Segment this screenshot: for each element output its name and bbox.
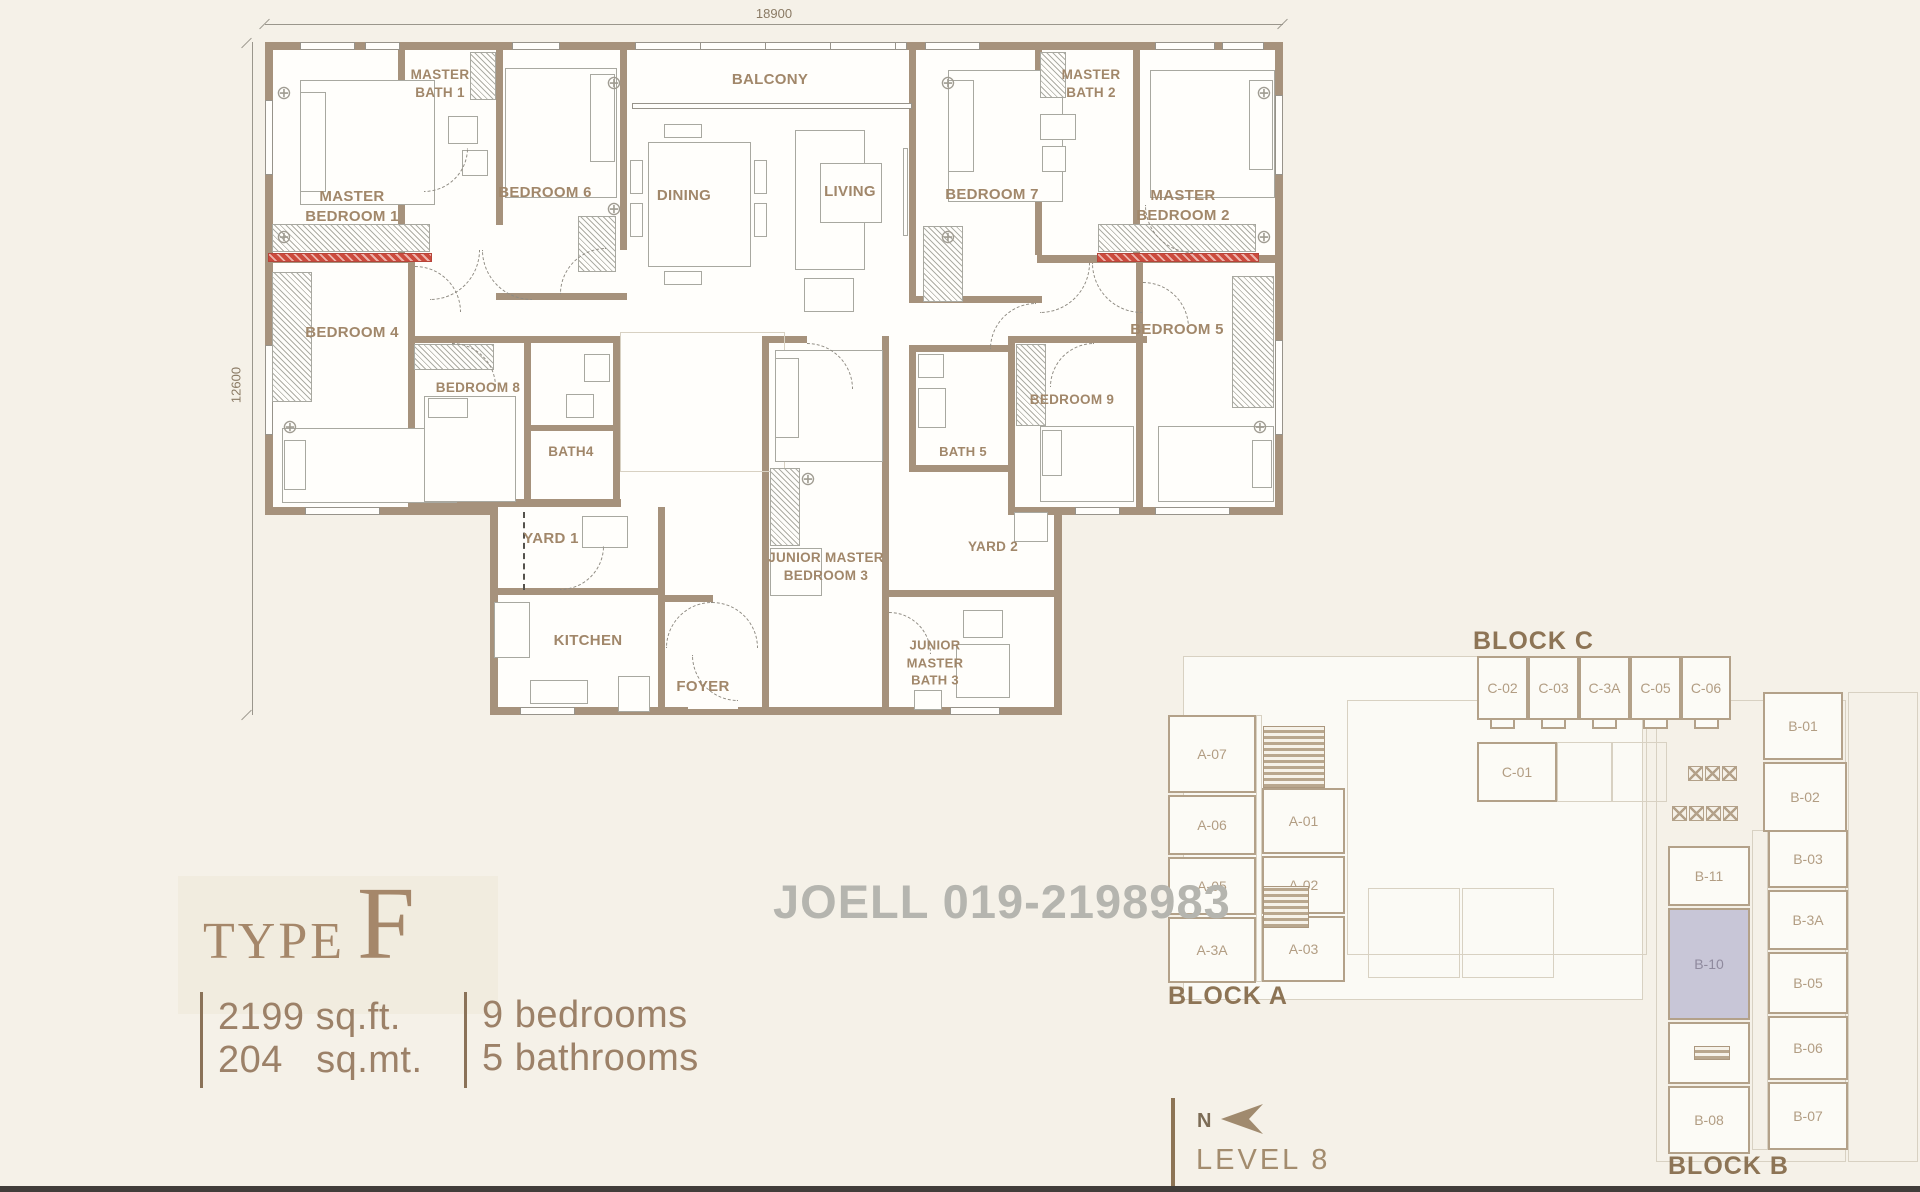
bed-pillow: [1042, 430, 1062, 476]
stair-core: [1694, 1046, 1730, 1060]
keyplan-unit-b05: B-05: [1768, 952, 1848, 1014]
unit-type-word: TYPE: [203, 912, 345, 971]
window: [512, 42, 560, 50]
basin: [914, 690, 942, 710]
unit-rooms: 9 bedrooms5 bathrooms: [482, 994, 699, 1079]
unit-label: A-3A: [1196, 942, 1227, 958]
wall: [1008, 336, 1015, 507]
wall: [613, 343, 620, 507]
downlight-icon: ⊕: [282, 418, 298, 437]
room-label-foyer: FOYER: [676, 677, 729, 697]
red-strip: [1097, 253, 1259, 262]
keyplan-unit-b03: B-03: [1768, 830, 1848, 888]
dimension-line-left: [252, 42, 253, 715]
toilet: [1040, 114, 1076, 140]
keyplan-unit-c05: C-05: [1630, 656, 1681, 720]
unit-area: 2199 sq.ft.204 sq.mt.: [218, 996, 423, 1081]
keyplan-tab: [1643, 718, 1668, 729]
window: [1155, 42, 1215, 50]
block-c-label: BLOCK C: [1473, 627, 1594, 656]
service-duct-outline: [620, 332, 785, 472]
wall: [909, 50, 916, 303]
basin: [918, 354, 944, 378]
window: [300, 42, 355, 50]
keyplan-unit-b06: B-06: [1768, 1016, 1848, 1080]
wall: [531, 425, 613, 431]
level-label: LEVEL 8: [1196, 1144, 1330, 1177]
chair: [630, 160, 643, 194]
room-label-bedroom-7: BEDROOM 7: [945, 185, 1039, 205]
red-strip: [268, 253, 432, 262]
wall: [909, 345, 916, 472]
dimension-tick: [241, 38, 252, 49]
chair: [630, 203, 643, 237]
keyplan-unit-b10-highlighted: B-10: [1668, 908, 1750, 1020]
north-label: N: [1197, 1110, 1211, 1133]
toilet: [963, 610, 1003, 638]
kitchen-sink: [530, 680, 588, 704]
lift-icon: [1706, 806, 1721, 821]
keyplan-unit-a01: A-01: [1262, 788, 1345, 854]
toilet: [918, 388, 946, 428]
wall: [889, 590, 1055, 597]
keyplan-amenity: [1368, 888, 1460, 978]
wall: [524, 343, 531, 507]
unit-label: B-07: [1793, 1108, 1823, 1124]
wall: [265, 507, 498, 515]
downlight-icon: ⊕: [276, 84, 292, 103]
room-label-bedroom-4: BEDROOM 4: [305, 323, 399, 343]
dimension-line-top: [265, 24, 1283, 25]
keyplan-unit-a06: A-06: [1168, 795, 1256, 855]
room-label-living: LIVING: [824, 182, 876, 202]
spec-divider: [200, 992, 203, 1088]
keyplan-unit-c02: C-02: [1477, 656, 1528, 720]
room-label-junior-master-bedroom-3: JUNIOR MASTER BEDROOM 3: [768, 549, 884, 585]
shower: [956, 644, 1010, 698]
room-label-dining: DINING: [657, 186, 711, 206]
keyplan-unit-b08: B-08: [1668, 1086, 1750, 1154]
downlight-icon: ⊕: [1256, 228, 1272, 247]
unit-label: B-3A: [1792, 912, 1823, 928]
bedrooms-count: 9 bedrooms: [482, 994, 688, 1036]
downlight-icon: ⊕: [276, 228, 292, 247]
keyplan-unit-c06: C-06: [1681, 656, 1731, 720]
unit-label: C-06: [1691, 680, 1721, 696]
lift-icon: [1689, 806, 1704, 821]
room-label-master-bedroom-1: MASTER BEDROOM 1: [305, 187, 399, 228]
room-label-bath-5: BATH 5: [939, 443, 987, 461]
dimension-left-label: 12600: [229, 367, 244, 403]
downlight-icon: ⊕: [940, 74, 956, 93]
window: [305, 507, 380, 515]
basin: [1042, 146, 1066, 172]
north-arrow-icon: [1219, 1103, 1265, 1135]
bed-pillow: [300, 92, 326, 192]
unit-label: C-3A: [1589, 680, 1621, 696]
stair-core: [1263, 886, 1309, 928]
wardrobe: [1232, 276, 1274, 408]
wall: [882, 336, 889, 715]
bed-pillow: [284, 440, 306, 490]
unit-label: B-06: [1793, 1040, 1823, 1056]
page-bottom-bar: [0, 1186, 1920, 1192]
stove: [494, 602, 530, 658]
keyplan-unit-b02: B-02: [1763, 762, 1847, 832]
yard-sink: [582, 516, 628, 548]
keyplan-unit-b07: B-07: [1768, 1082, 1848, 1150]
bed-pillow: [775, 358, 799, 438]
unit-label: B-10: [1694, 956, 1724, 972]
wall: [496, 588, 665, 595]
keyplan-unit-b11: B-11: [1668, 846, 1750, 906]
window: [520, 707, 575, 715]
tv-console: [903, 148, 908, 236]
block-b-label: BLOCK B: [1668, 1152, 1789, 1181]
chair: [664, 124, 702, 138]
level-divider: [1171, 1098, 1175, 1188]
wall: [658, 595, 665, 715]
keyplan-slab: [1848, 692, 1918, 1162]
unit-label: B-02: [1790, 789, 1820, 805]
lift-icon: [1705, 766, 1720, 781]
agent-watermark: JOELL 019-2198983: [773, 874, 1231, 929]
lift-icon: [1672, 806, 1687, 821]
wardrobe: [770, 468, 800, 546]
keyplan-tab: [1592, 718, 1617, 729]
wall: [658, 595, 713, 602]
keyplan-unit-b01: B-01: [1763, 692, 1843, 760]
keyplan-tab: [1490, 718, 1515, 729]
room-label-yard-2: YARD 2: [968, 538, 1018, 556]
window: [925, 42, 980, 50]
room-label-bedroom-6: BEDROOM 6: [498, 183, 592, 203]
room-label-bedroom-8: BEDROOM 8: [436, 379, 520, 397]
unit-type-title: TYPE F: [203, 872, 415, 976]
toilet: [448, 116, 478, 144]
room-label-yard-1: YARD 1: [523, 529, 578, 549]
unit-label: C-01: [1502, 764, 1532, 780]
dimension-tick: [241, 710, 252, 721]
block-a-label: BLOCK A: [1168, 982, 1288, 1011]
basin: [584, 354, 610, 382]
downlight-icon: ⊕: [1252, 418, 1268, 437]
window: [1222, 42, 1264, 50]
chair: [664, 271, 702, 285]
window: [1155, 507, 1230, 515]
room-label-bedroom-9: BEDROOM 9: [1030, 391, 1114, 409]
window: [950, 707, 1000, 715]
window: [1075, 507, 1120, 515]
spec-divider: [464, 992, 467, 1088]
yard-divider: [523, 512, 526, 590]
unit-label: A-01: [1289, 813, 1319, 829]
unit-label: B-03: [1793, 851, 1823, 867]
keyplan-unit-c01: C-01: [1477, 742, 1557, 802]
bathrooms-count: 5 bathrooms: [482, 1037, 699, 1079]
kitchen-unit: [618, 676, 650, 712]
wardrobe: [272, 224, 430, 252]
room-label-bedroom-5: BEDROOM 5: [1130, 320, 1224, 340]
wall: [909, 465, 1015, 472]
wall: [415, 336, 620, 343]
unit-label: B-05: [1793, 975, 1823, 991]
room-label-master-bath-1: MASTER BATH 1: [411, 66, 470, 102]
armchair: [804, 278, 854, 312]
keyplan-unit-a07: A-07: [1168, 715, 1256, 793]
unit-label: B-11: [1695, 868, 1724, 884]
room-label-balcony: BALCONY: [732, 70, 808, 90]
unit-type-letter: F: [357, 872, 415, 976]
room-label-junior-master-bath-3: JUNIOR MASTER BATH 3: [907, 637, 964, 690]
unit-label: A-07: [1197, 746, 1227, 762]
unit-label: C-05: [1640, 680, 1670, 696]
lift-icon: [1688, 766, 1703, 781]
downlight-icon: ⊕: [800, 470, 816, 489]
chair: [754, 203, 767, 237]
window: [635, 42, 907, 50]
chair: [754, 160, 767, 194]
keyplan-unit-b3a: B-3A: [1768, 890, 1848, 950]
area-metric: 204 sq.mt.: [218, 1039, 423, 1081]
bed-pillow: [1252, 440, 1272, 488]
unit-label: C-02: [1487, 680, 1517, 696]
keyplan-unit-c03: C-03: [1528, 656, 1579, 720]
keyplan-room: [1557, 742, 1612, 802]
keyplan-unit-c3a: C-3A: [1579, 656, 1630, 720]
bed-pillow: [428, 398, 468, 418]
window: [1275, 340, 1283, 435]
unit-label: A-03: [1289, 941, 1319, 957]
dimension-top-label: 18900: [756, 6, 792, 21]
room-label-kitchen: KITCHEN: [554, 631, 623, 651]
toilet: [566, 394, 594, 418]
room-label-master-bedroom-2: MASTER BEDROOM 2: [1136, 186, 1230, 227]
washer: [1014, 512, 1048, 542]
downlight-icon: ⊕: [1256, 84, 1272, 103]
downlight-icon: ⊕: [606, 200, 622, 219]
downlight-icon: ⊕: [606, 74, 622, 93]
keyplan-room: [1612, 742, 1667, 802]
downlight-icon: ⊕: [940, 228, 956, 247]
wall: [658, 507, 665, 592]
unit-label: C-03: [1538, 680, 1568, 696]
window: [265, 100, 273, 175]
stair-core: [1263, 726, 1325, 788]
keyplan-tab: [1541, 718, 1566, 729]
floorplan-page: 18900 12600: [0, 0, 1920, 1192]
keyplan-tab: [1694, 718, 1719, 729]
shaft: [470, 52, 496, 100]
keyplan-amenity: [1462, 888, 1554, 978]
window: [365, 42, 400, 50]
wall: [1008, 507, 1283, 515]
window: [1275, 95, 1283, 175]
keyplan-corridor: [1752, 830, 1768, 1150]
area-imperial: 2199 sq.ft.: [218, 996, 401, 1038]
room-label-master-bath-2: MASTER BATH 2: [1062, 66, 1121, 102]
unit-label: A-06: [1197, 817, 1227, 833]
lift-icon: [1723, 806, 1738, 821]
unit-label: B-08: [1694, 1112, 1724, 1128]
room-label-bath-4: BATH4: [548, 443, 594, 461]
wardrobe: [1016, 344, 1046, 426]
sliding-door: [632, 103, 912, 109]
lift-icon: [1722, 766, 1737, 781]
unit-label: B-01: [1788, 718, 1818, 734]
